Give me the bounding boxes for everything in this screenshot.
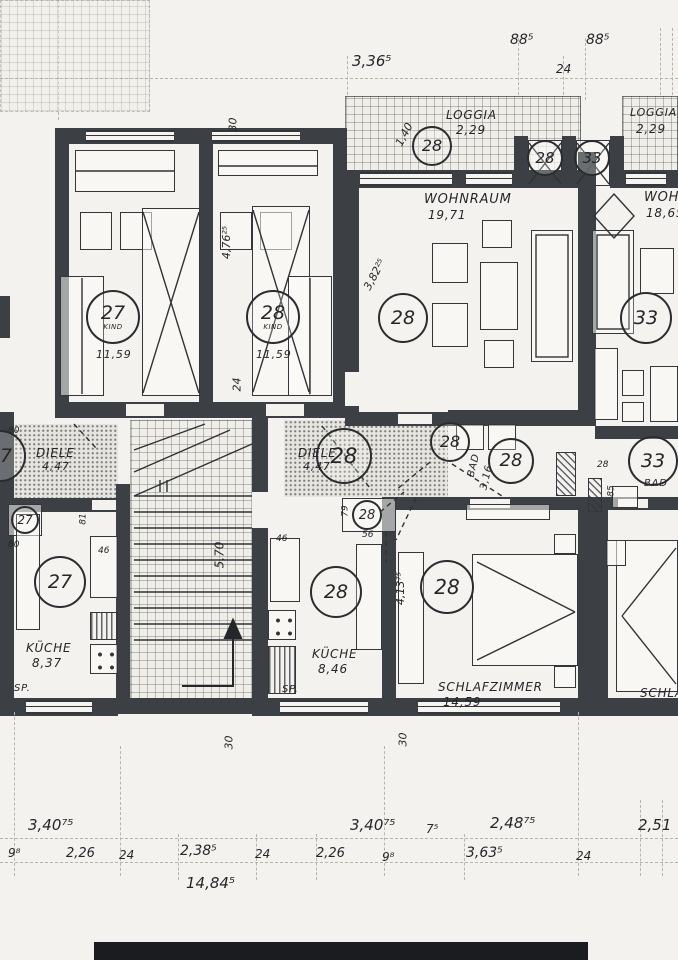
wall — [199, 144, 213, 406]
dim-top-4: 88⁵ — [586, 32, 609, 48]
unit-number: 27 — [48, 573, 72, 592]
room-area: 18,65 — [646, 206, 678, 220]
furniture-bed — [142, 208, 200, 396]
room-area: 3,16 — [478, 464, 495, 491]
furniture-cupboard — [640, 248, 674, 294]
dim-bottom-wall-2: 30 — [397, 733, 410, 747]
unit-number: 28 — [535, 151, 554, 166]
furniture-nightstand — [554, 534, 576, 554]
room-label-wohnraum: WOHNRAUM — [424, 192, 512, 207]
furniture-nightstand — [554, 666, 576, 688]
window — [466, 172, 512, 186]
furniture-table — [484, 340, 514, 368]
furniture-cupboard — [650, 366, 678, 422]
hatch-loggia-topleft — [0, 0, 150, 112]
dim-bottom-r1-d: 2,48⁷⁵ — [490, 814, 535, 832]
furniture-double-bed — [472, 554, 578, 666]
dim-small: 28 — [597, 460, 608, 470]
dim-bottom-r2-h: 3,63⁵ — [466, 845, 503, 861]
dim-bottom-r2-i: 24 — [576, 849, 591, 863]
room-label-bad-right: BAD — [644, 478, 678, 489]
wall — [116, 484, 130, 712]
furniture-table — [480, 262, 518, 330]
unit-circle-kueche-27: 27 — [34, 556, 86, 608]
door-opening — [92, 500, 118, 510]
furniture-sofa — [531, 230, 573, 362]
unit-number: 33 — [634, 309, 658, 328]
dim-room-width: 4,13⁷⁵ — [394, 572, 407, 605]
room-label-sp: SP. — [282, 684, 299, 695]
furniture-shelf — [218, 150, 318, 176]
unit-circle-shaft-33: 33 — [574, 140, 610, 176]
furniture-chair — [432, 243, 468, 283]
furniture-shelf — [75, 150, 175, 192]
dim-bottom-r2-f: 2,26 — [316, 846, 345, 861]
room-label-diele: DIELE — [298, 446, 337, 460]
dim-room-width: 3,82²⁵ — [361, 257, 388, 293]
scan-edge-bar — [94, 942, 588, 960]
kitchen-cupboard — [270, 538, 300, 602]
room-area: 8,37 — [32, 656, 62, 670]
furniture-shelf — [466, 504, 550, 520]
unit-circle-loggia-28: 28 — [412, 126, 452, 166]
window — [26, 700, 92, 714]
dim-line-bottom-1 — [0, 838, 678, 839]
room-label-wohnraum-right: WOHNRAUM — [644, 190, 678, 205]
dim-small: 81 — [79, 513, 89, 524]
window — [360, 172, 452, 186]
furniture-table — [622, 402, 644, 422]
furniture-table — [622, 370, 644, 396]
room-label-sp: SP. — [14, 683, 31, 694]
room-type: KIND — [263, 324, 282, 331]
unit-circle-schlaf-28: 28 — [420, 560, 474, 614]
dim-bottom-r2-d: 2,38⁵ — [180, 843, 217, 859]
unit-number: 28 — [391, 309, 415, 328]
dim-small: 79 — [341, 505, 351, 516]
unit-circle-bad-28: 28 — [488, 438, 534, 484]
dim-tick — [178, 834, 179, 880]
furniture-chair — [482, 220, 512, 248]
bathtub — [588, 478, 602, 512]
room-area: 8,46 — [318, 662, 348, 676]
unit-number: 28 — [434, 577, 459, 597]
unit-circle-diele-28-small: 28 — [430, 422, 470, 462]
door-opening — [345, 372, 359, 406]
dim-bottom-total: 14,84⁵ — [186, 874, 235, 892]
dim-tick — [464, 834, 465, 880]
room-label-diele: DIELE — [36, 446, 75, 460]
dim-bottom-r2-e: 24 — [255, 847, 270, 861]
unit-number: 27 — [0, 447, 12, 466]
room-label-loggia: LOGGIA — [446, 108, 497, 122]
room-area: 2,29 — [636, 122, 666, 136]
dim-tick — [662, 800, 663, 876]
wall — [595, 426, 678, 439]
room-label-schlafzimmer: SCHLAFZIMMER — [438, 680, 543, 694]
dim-bottom-r2-a: 9⁸ — [8, 846, 20, 860]
room-area: 11,59 — [96, 348, 132, 361]
dim-wall: 30 — [227, 118, 240, 132]
bathtub — [556, 452, 576, 496]
wall — [0, 296, 10, 338]
wall — [578, 497, 594, 713]
room-label-schlafzimmer-right: SCHLAFZIMMER — [640, 686, 678, 700]
room-area: 19,71 — [428, 208, 466, 222]
dim-small: 85 — [607, 485, 617, 496]
door-opening — [266, 404, 304, 416]
room-label-loggia-right: LOGGIA — [630, 106, 678, 119]
furniture-table — [80, 212, 112, 250]
door-opening — [398, 414, 432, 424]
unit-number: 28 — [422, 138, 442, 154]
window — [86, 130, 174, 142]
hatch-stair-floor — [130, 420, 254, 702]
unit-circle-wohnraum-33: 33 — [620, 292, 672, 344]
unit-circle-shaft-28: 28 — [527, 140, 563, 176]
wall — [594, 698, 678, 716]
kitchen-stove — [90, 644, 118, 674]
dim-top-1: 3,36⁵ — [352, 52, 391, 70]
wall — [448, 410, 580, 424]
dim-small: 80 — [8, 540, 19, 550]
dim-small: 56 — [362, 530, 373, 540]
dim-top-3: 24 — [556, 62, 571, 76]
unit-number: 27 — [101, 304, 125, 323]
unit-circle-wc-27: 27 — [11, 506, 39, 534]
dim-stair-run: 5,70 — [212, 542, 226, 569]
room-area: 2,29 — [456, 123, 486, 137]
dim-bottom-r1-a: 3,40⁷⁵ — [28, 816, 73, 834]
floorplan-page: { "top_dims": {"w1":"3,36⁵","w2":"88⁵","… — [0, 0, 678, 960]
room-area: 14,59 — [443, 695, 481, 709]
unit-number: 28 — [324, 583, 348, 602]
door-opening — [252, 492, 268, 528]
window — [418, 700, 560, 714]
window — [212, 130, 300, 142]
dim-tick — [640, 800, 641, 876]
unit-number: 33 — [582, 151, 601, 166]
furniture-chair — [432, 303, 468, 347]
wall — [252, 418, 268, 712]
unit-number: 28 — [261, 304, 285, 323]
dim-wall: 24 — [231, 378, 244, 392]
dim-small: 80 — [8, 426, 19, 436]
dim-bottom-r1-b: 3,40⁷⁵ — [350, 816, 395, 834]
dim-small: 46 — [276, 534, 287, 544]
unit-circle-kind-28: 28 KIND — [246, 290, 300, 344]
dim-bottom-r2-g: 9⁸ — [382, 850, 394, 864]
room-type: KIND — [103, 324, 122, 331]
dim-bottom-r1-e: 2,51 — [638, 816, 671, 834]
room-area: 4,47 — [42, 460, 70, 473]
unit-number: 33 — [641, 452, 665, 471]
unit-circle-kueche-28: 28 — [310, 566, 362, 618]
dim-bottom-wall-1: 30 — [223, 736, 236, 750]
unit-number: 28 — [440, 434, 460, 450]
room-label-kueche: KÜCHE — [26, 641, 71, 655]
dim-tick — [347, 56, 348, 100]
door-opening — [126, 404, 164, 416]
furniture-cupboard — [594, 348, 618, 420]
dim-small: 46 — [98, 546, 109, 556]
kitchen-sink — [90, 612, 118, 640]
unit-circle-wc-28: 28 — [352, 500, 382, 530]
kitchen-stove — [268, 610, 296, 640]
room-area: 4,47 — [303, 460, 331, 473]
dim-bottom-r2-b: 2,26 — [66, 846, 95, 861]
furniture-nightstand — [606, 540, 626, 566]
unit-number: 28 — [500, 452, 523, 470]
room-label-bad: BAD — [466, 453, 482, 479]
window — [280, 700, 368, 714]
room-area: 11,59 — [256, 348, 292, 361]
unit-number: 27 — [17, 514, 32, 526]
dim-top-2: 88⁵ — [510, 32, 533, 48]
wall — [116, 698, 268, 714]
unit-number: 28 — [359, 509, 376, 522]
room-label-kueche: KÜCHE — [312, 647, 357, 661]
dim-bottom-r2-c: 24 — [119, 848, 134, 862]
window — [626, 172, 666, 186]
unit-circle-kind-27: 27 KIND — [86, 290, 140, 344]
dim-bottom-r1-c: 7⁵ — [426, 822, 438, 836]
furniture-wardrobe — [288, 276, 332, 396]
unit-circle-wohnraum-28: 28 — [378, 293, 428, 343]
dim-room-height: 4,76²⁵ — [220, 226, 233, 259]
